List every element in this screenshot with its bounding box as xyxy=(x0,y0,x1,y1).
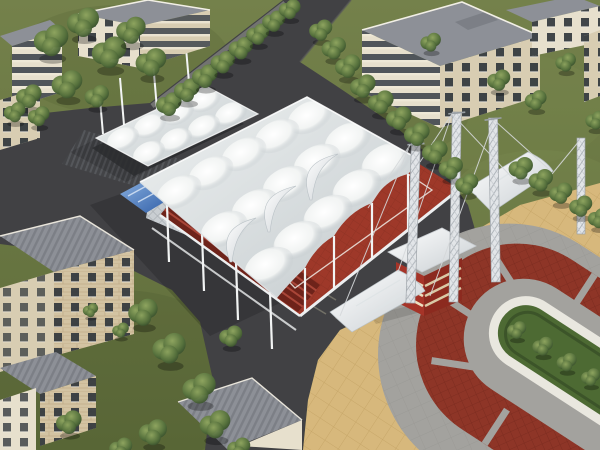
architectural-render xyxy=(0,0,600,450)
building-right-edge xyxy=(584,30,600,102)
render-stage xyxy=(0,0,600,450)
